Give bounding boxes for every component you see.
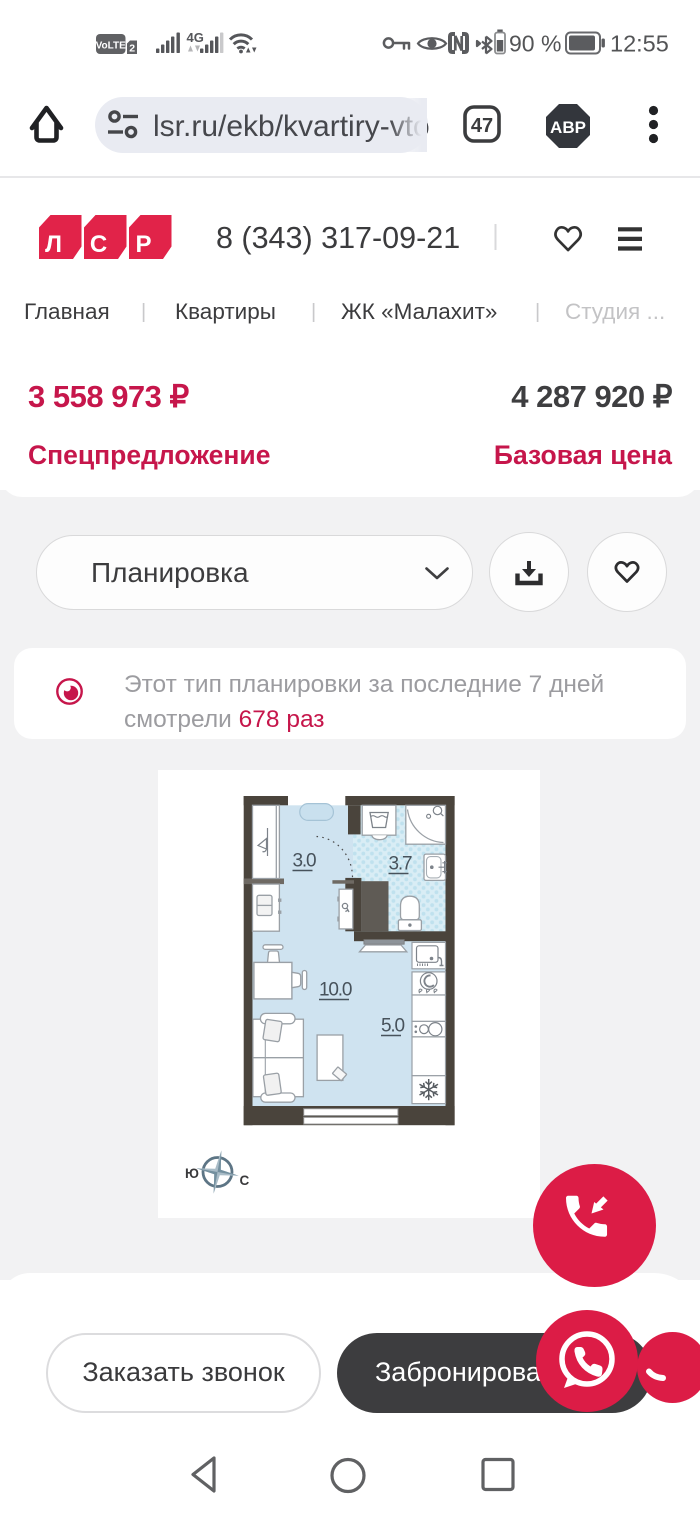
svg-text:2: 2	[129, 43, 135, 55]
svg-text:3.0: 3.0	[293, 851, 316, 872]
svg-text:4G: 4G	[187, 30, 204, 45]
svg-text:VoLTE: VoLTE	[96, 41, 127, 52]
svg-text:|: |	[311, 301, 316, 323]
svg-text:10.0: 10.0	[319, 980, 352, 1001]
svg-text:Главная: Главная	[24, 299, 110, 324]
svg-text:8 (343) 317-09-21: 8 (343) 317-09-21	[216, 221, 460, 255]
svg-text:lsr.ru/ekb/kvartiry-vto: lsr.ru/ekb/kvartiry-vto	[153, 110, 430, 143]
svg-text:|: |	[535, 301, 540, 323]
svg-text:Квартиры: Квартиры	[175, 299, 276, 324]
svg-text:Р: Р	[135, 231, 151, 258]
svg-text:С: С	[90, 231, 107, 258]
svg-text:|: |	[141, 301, 146, 323]
svg-text:С: С	[240, 1173, 250, 1188]
svg-text:12:55: 12:55	[610, 31, 669, 57]
svg-text:ЖК «Малахит»: ЖК «Малахит»	[341, 299, 497, 324]
svg-text:47: 47	[471, 115, 493, 137]
svg-text:3.7: 3.7	[389, 854, 412, 875]
svg-text:Л: Л	[45, 231, 62, 258]
svg-text:90 %: 90 %	[509, 31, 561, 57]
svg-text:Студия ...: Студия ...	[565, 299, 665, 324]
svg-text:ABP: ABP	[550, 118, 586, 137]
svg-text:5.0: 5.0	[381, 1016, 404, 1037]
svg-text:Ю: Ю	[185, 1166, 199, 1181]
